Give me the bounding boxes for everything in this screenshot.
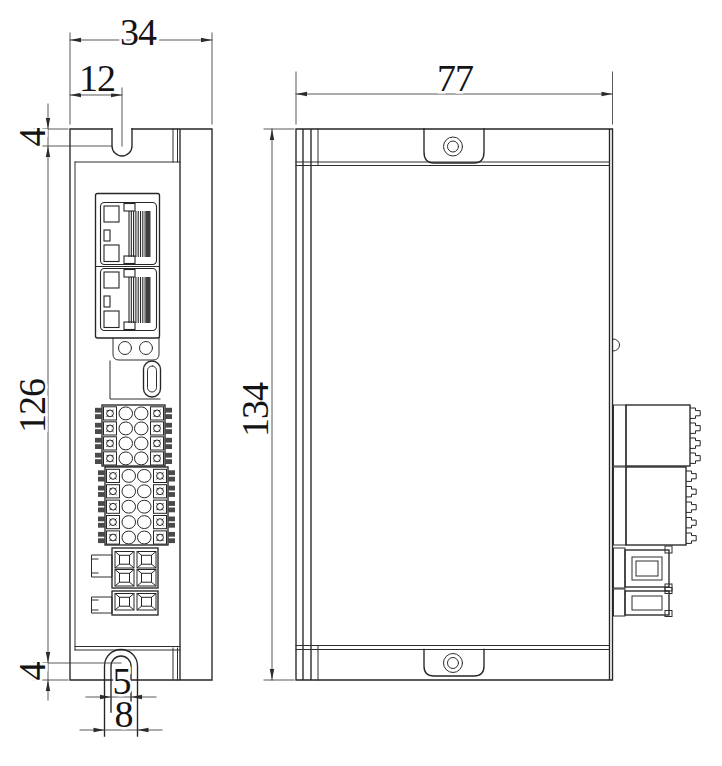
- dim-text-bottom-slot-depth: 4: [11, 662, 53, 681]
- dim-text-body-depth: 77: [437, 57, 473, 99]
- dim-text-top-slot-depth: 4: [11, 128, 53, 147]
- background: [0, 0, 722, 766]
- dim-text-slot-offset: 12: [79, 57, 115, 99]
- drawing-canvas: 34 12 4 126 4 5 8 77: [0, 0, 722, 766]
- dim-text-overall-height: 134: [234, 382, 276, 437]
- dim-text-front-width: 34: [120, 11, 157, 53]
- dimension-drawing: 34 12 4 126 4 5 8 77: [0, 0, 722, 766]
- dim-text-tab-width: 8: [115, 693, 133, 735]
- dim-text-mounting-pitch: 126: [11, 379, 53, 433]
